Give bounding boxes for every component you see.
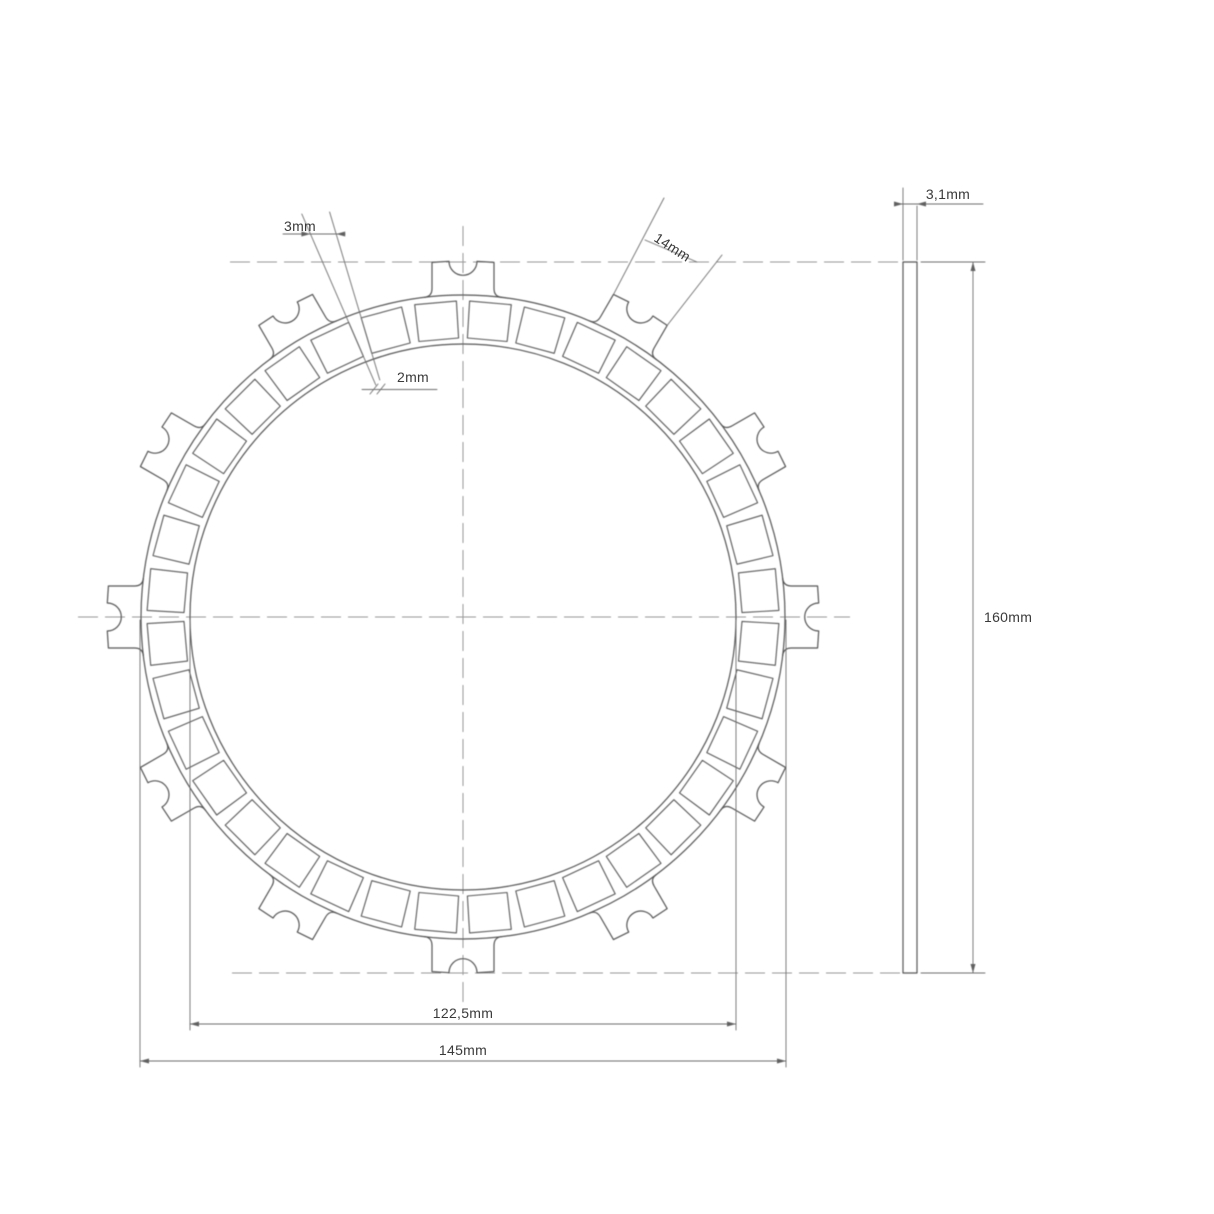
friction-pad [153, 670, 199, 719]
dimension-groove-outer [283, 212, 380, 385]
extension-line [667, 255, 722, 325]
arrowhead [336, 232, 345, 237]
dim-label-tab-width: 14mm [651, 230, 693, 265]
plate-side-view [903, 262, 917, 973]
friction-pad [516, 881, 565, 927]
dim-label-overall-height: 160mm [984, 609, 1032, 625]
tick-mark [370, 384, 378, 394]
clutch-tab [721, 744, 791, 829]
friction-pad [646, 800, 701, 855]
dim-label-thickness: 3,1mm [926, 186, 970, 202]
dim-label-groove-inner: 2mm [397, 369, 429, 385]
friction-pad [467, 301, 511, 341]
tick-mark [377, 384, 385, 394]
dim-label-friction-diameter: 145mm [439, 1042, 487, 1058]
clutch-tab [252, 875, 337, 945]
side-view-plate [903, 262, 917, 973]
dimension-labels: 3mm 2mm 14mm 3,1mm 160mm 122,5mm 145mm [284, 186, 1032, 1058]
friction-pad [727, 515, 773, 564]
dimension-groove-inner [362, 384, 437, 394]
clutch-tab [252, 290, 337, 360]
arrowhead [971, 262, 976, 271]
friction-pad [153, 515, 199, 564]
friction-pad [147, 569, 187, 613]
technical-drawing-canvas: 3mm 2mm 14mm 3,1mm 160mm 122,5mm 145mm [0, 0, 1214, 1214]
friction-pad [225, 800, 280, 855]
arrowhead [777, 1059, 786, 1064]
arrowhead [917, 202, 926, 207]
friction-pad [225, 379, 280, 434]
dimension-overall-height [921, 262, 985, 973]
friction-pad [646, 379, 701, 434]
arrowhead [140, 1059, 149, 1064]
clutch-tab [136, 744, 206, 829]
extension-line [302, 214, 376, 385]
friction-pad [415, 301, 459, 341]
friction-pad [516, 307, 565, 353]
friction-pad [361, 881, 410, 927]
friction-pad [467, 893, 511, 933]
friction-pad [361, 307, 410, 353]
arrowhead [971, 964, 976, 973]
technical-drawing-page: 3mm 2mm 14mm 3,1mm 160mm 122,5mm 145mm [0, 0, 1214, 1214]
clutch-tab [721, 406, 791, 491]
friction-pad [739, 569, 779, 613]
dim-label-groove-outer: 3mm [284, 218, 316, 234]
friction-pad [415, 893, 459, 933]
dim-label-inner-diameter: 122,5mm [433, 1005, 493, 1021]
clutch-tab [136, 406, 206, 491]
friction-pad [147, 621, 187, 665]
clutch-tab [590, 290, 675, 360]
clutch-tab [590, 875, 675, 945]
arrowhead [727, 1022, 736, 1027]
arrowhead [190, 1022, 199, 1027]
friction-pad [727, 670, 773, 719]
friction-pad [739, 621, 779, 665]
arrowhead [894, 202, 903, 207]
